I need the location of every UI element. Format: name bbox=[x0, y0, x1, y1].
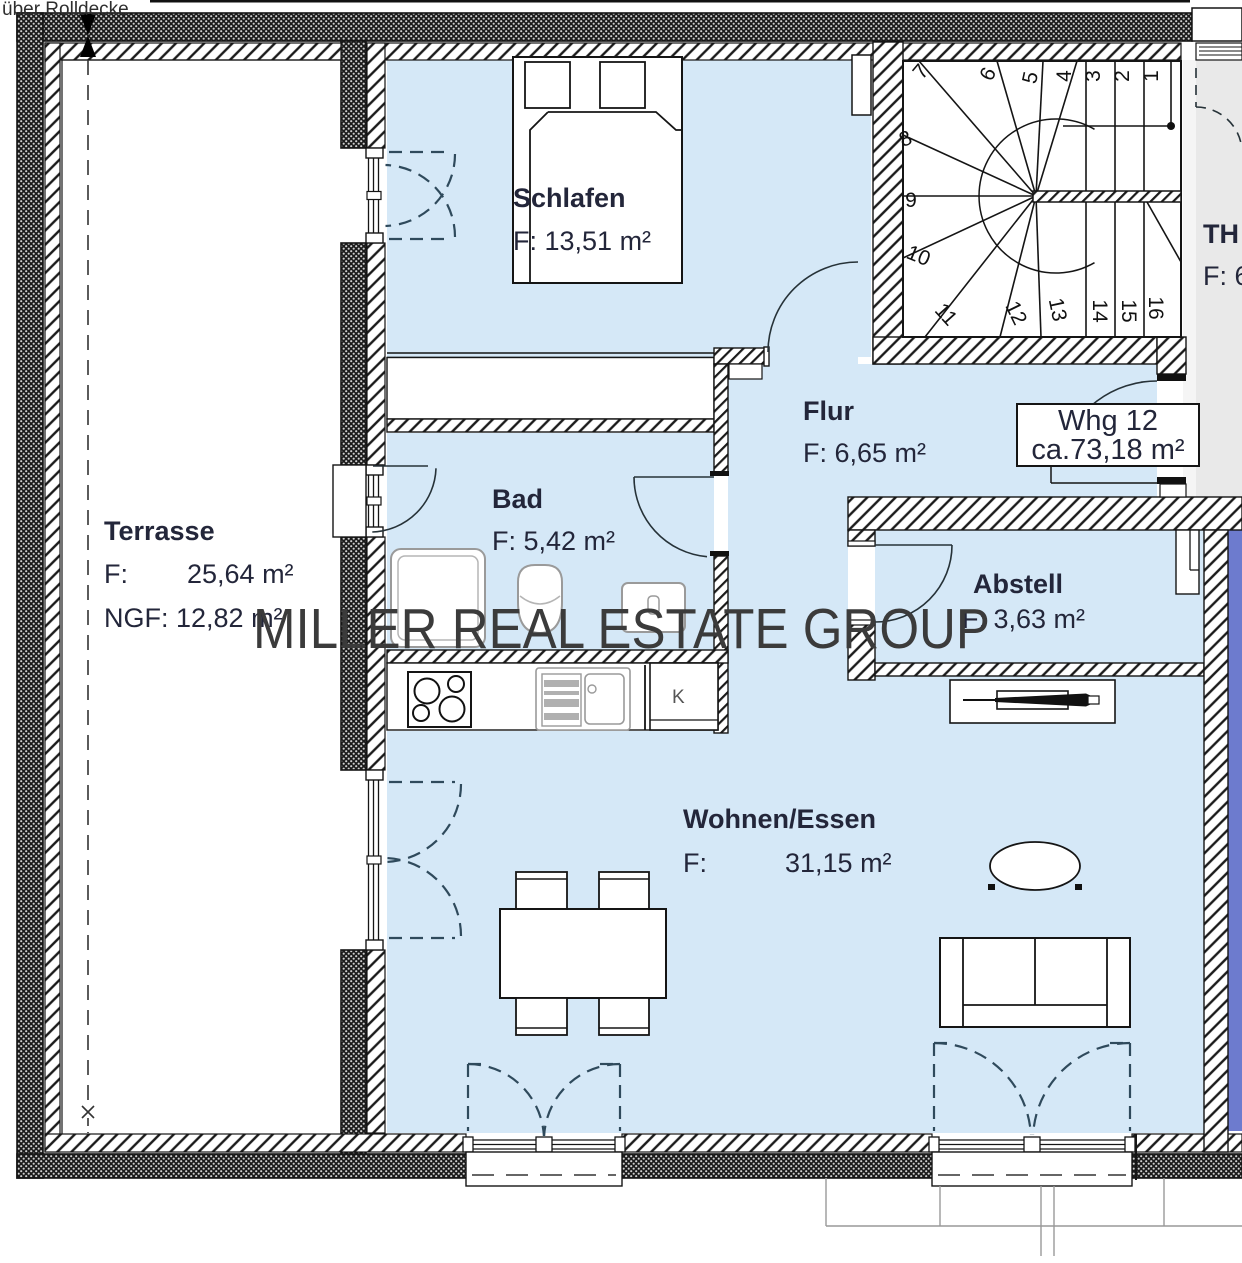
svg-text:ca.73,18 m²: ca.73,18 m² bbox=[1031, 434, 1184, 466]
svg-text:Abstell: Abstell bbox=[973, 569, 1063, 599]
svg-text:F:: F: bbox=[104, 559, 128, 589]
svg-text:2: 2 bbox=[1111, 70, 1134, 82]
svg-text:1: 1 bbox=[1140, 70, 1163, 82]
svg-text:Terrasse: Terrasse bbox=[104, 516, 215, 546]
svg-text:K: K bbox=[672, 687, 685, 708]
svg-text:Schlafen: Schlafen bbox=[513, 183, 626, 213]
svg-text:F:: F: bbox=[683, 848, 707, 878]
svg-text:TH: TH bbox=[1203, 219, 1239, 249]
svg-text:4: 4 bbox=[1053, 70, 1076, 82]
svg-text:Flur: Flur bbox=[803, 396, 854, 426]
svg-text:15: 15 bbox=[1117, 299, 1140, 322]
svg-text:F: 6: F: 6 bbox=[1203, 261, 1242, 291]
svg-text:16: 16 bbox=[1144, 296, 1167, 319]
svg-text:F: 13,51 m²: F: 13,51 m² bbox=[513, 226, 651, 256]
svg-text:14: 14 bbox=[1088, 299, 1111, 323]
svg-text:F: 6,65 m²: F: 6,65 m² bbox=[803, 438, 926, 468]
svg-text:MILLER REAL ESTATE GROUP: MILLER REAL ESTATE GROUP bbox=[253, 597, 990, 661]
svg-text:Wohnen/Essen: Wohnen/Essen bbox=[683, 804, 876, 834]
svg-text:25,64 m²: 25,64 m² bbox=[187, 559, 294, 589]
svg-text:Whg 12: Whg 12 bbox=[1058, 405, 1158, 437]
svg-text:9: 9 bbox=[905, 189, 917, 212]
svg-text:3: 3 bbox=[1082, 70, 1105, 82]
svg-text:13: 13 bbox=[1044, 296, 1071, 324]
svg-text:F: 5,42 m²: F: 5,42 m² bbox=[492, 526, 615, 556]
svg-text:Bad: Bad bbox=[492, 484, 543, 514]
svg-text:über Rolldecke: über Rolldecke bbox=[2, 0, 129, 20]
svg-text:31,15 m²: 31,15 m² bbox=[785, 848, 892, 878]
